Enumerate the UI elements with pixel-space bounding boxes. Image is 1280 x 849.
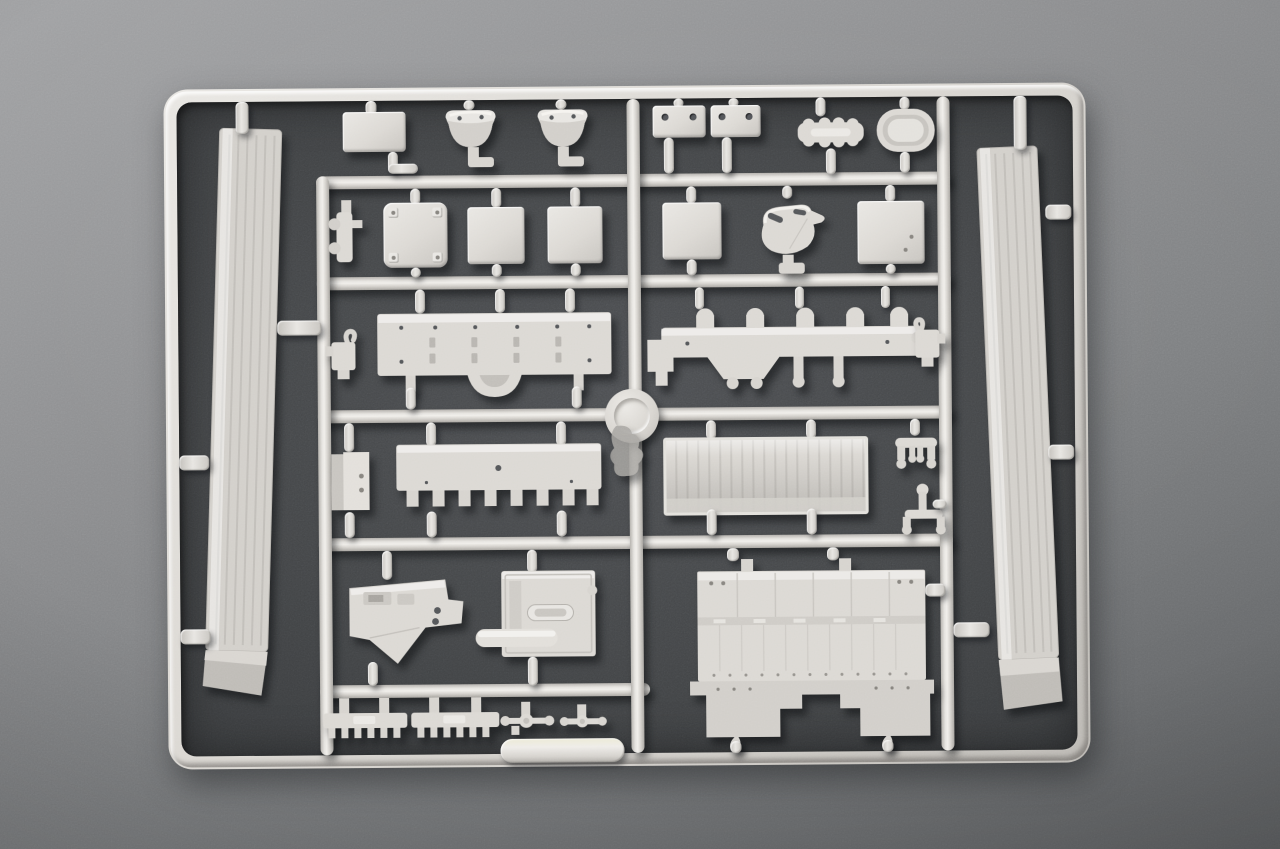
connector-stub xyxy=(886,264,896,274)
part-stand-fitting xyxy=(898,483,948,535)
part-axle-cluster-a xyxy=(499,702,555,740)
part-teapot-shaped-casting xyxy=(749,196,828,275)
part-hinge-plate-b xyxy=(710,105,760,137)
connector-stub xyxy=(900,152,910,173)
sprue-frame-assembly xyxy=(163,82,1090,769)
connector-stub xyxy=(382,551,392,580)
connector-stub xyxy=(954,622,990,637)
connector-stub xyxy=(826,148,836,174)
connector-stub xyxy=(415,290,425,314)
connector-stub xyxy=(492,264,502,277)
connector-stub xyxy=(277,320,321,335)
connector-stub xyxy=(406,388,416,410)
connector-stub xyxy=(722,137,732,173)
connector-stub xyxy=(571,263,581,276)
part-square-panel-b xyxy=(547,206,602,263)
connector-stub xyxy=(345,512,355,538)
connector-stub xyxy=(426,423,436,447)
connector-stub xyxy=(707,509,717,535)
part-square-panel-a xyxy=(467,207,524,264)
part-side-bracket xyxy=(329,200,370,270)
part-lower-hull-panel xyxy=(689,558,935,752)
connector-stub xyxy=(527,550,537,573)
connector-stub xyxy=(565,288,575,312)
connector-stub xyxy=(686,186,696,203)
connector-stub xyxy=(570,187,580,207)
part-scalloped-block xyxy=(795,114,867,151)
connector-stub xyxy=(1048,444,1074,459)
part-flash-blob xyxy=(606,424,652,480)
part-rectangular-plate xyxy=(343,112,406,152)
part-ribbed-tailgate-panel xyxy=(663,436,869,516)
connector-stub xyxy=(181,629,211,644)
part-hook-fitting-right xyxy=(905,313,945,367)
connector-stub xyxy=(807,509,817,535)
part-square-panel-c xyxy=(662,202,721,259)
connector-stub xyxy=(528,657,538,686)
connector-stub xyxy=(411,268,421,278)
part-access-panel xyxy=(383,202,448,268)
connector-stub xyxy=(556,421,566,445)
connector-stub xyxy=(664,138,674,174)
connector-stub xyxy=(491,188,501,208)
part-four-foot-bracket xyxy=(893,434,939,476)
part-axle-cluster-b xyxy=(558,704,608,738)
sprue-photo xyxy=(0,0,1280,849)
part-toothed-rail xyxy=(396,443,602,515)
connector-stub xyxy=(1013,96,1026,150)
connector-stub xyxy=(1045,205,1071,220)
part-angled-glacis-plate xyxy=(349,577,466,666)
connector-stub xyxy=(557,510,567,536)
connector-stub xyxy=(179,455,209,470)
part-dome-cover-right xyxy=(531,106,594,174)
part-oval-hatch xyxy=(876,108,936,154)
connector-stub xyxy=(885,185,895,202)
connector-stub xyxy=(344,423,354,452)
part-track-comb-a xyxy=(323,698,407,743)
part-hinge-plate-a xyxy=(652,105,705,137)
part-bottom-grip-tab xyxy=(500,738,624,763)
connector-stub xyxy=(730,741,741,753)
connector-stub xyxy=(925,584,945,597)
connector-stub xyxy=(235,102,248,134)
part-dome-cover-left xyxy=(439,107,502,175)
connector-stub xyxy=(572,386,582,408)
connector-stub xyxy=(427,511,437,537)
part-track-comb-b xyxy=(411,697,499,742)
part-suspension-beam xyxy=(647,304,932,402)
connector-stub xyxy=(687,259,697,275)
connector-stub xyxy=(933,499,947,508)
part-hook-fitting-left xyxy=(325,326,367,380)
part-equipment-tray xyxy=(475,570,600,659)
part-square-panel-d xyxy=(857,201,924,265)
part-stowage-box xyxy=(329,450,371,512)
connector-stub xyxy=(368,662,378,686)
connector-stub xyxy=(495,289,505,313)
connector-stub xyxy=(882,740,893,752)
connector-stub xyxy=(388,164,418,174)
